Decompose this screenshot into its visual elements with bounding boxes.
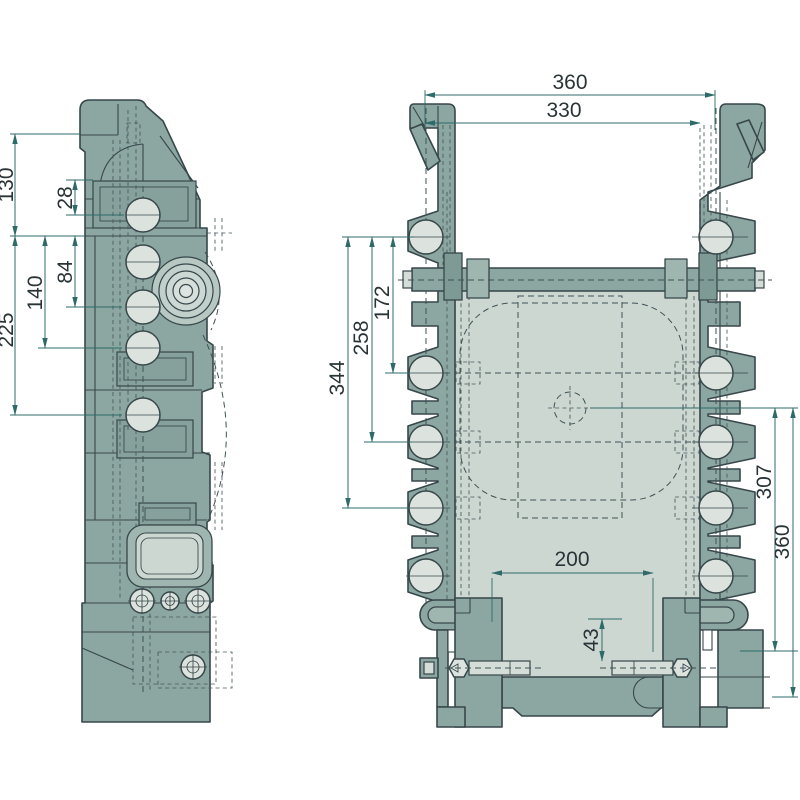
inspection-window: [127, 525, 212, 587]
slot-gap-right: [703, 630, 712, 650]
left-clamp-slab: [410, 124, 440, 170]
dim-130: 130: [0, 134, 85, 236]
dimension-label-330: 330: [546, 99, 581, 122]
dimension-label-172: 172: [371, 285, 394, 320]
dimension-label-258: 258: [350, 320, 373, 355]
dim-258: 258: [350, 237, 412, 442]
clamp-bolt-left: [445, 659, 545, 677]
dimension-label-43: 43: [580, 628, 603, 651]
front-view: 360 330 172 258 344: [326, 71, 798, 727]
bearing-boss: [152, 257, 220, 325]
dimension-label-200: 200: [554, 548, 589, 571]
dimension-label-130: 130: [0, 167, 18, 202]
cad-drawing-page: 130 225 140 84 28: [0, 0, 800, 800]
dim-344: 344: [326, 237, 410, 508]
dimension-label-307: 307: [753, 464, 776, 499]
foot-right: [700, 707, 727, 727]
cad-drawing: 130 225 140 84 28: [0, 0, 800, 800]
dimension-label-344: 344: [326, 360, 349, 395]
dimension-label-28: 28: [54, 186, 77, 209]
side-view: 130 225 140 84 28: [0, 100, 232, 722]
dimension-label-360-right: 360: [771, 524, 794, 559]
dimension-label-360-top: 360: [552, 71, 587, 94]
dimension-label-140: 140: [24, 275, 47, 310]
base-web: [502, 677, 663, 716]
dimension-label-225: 225: [0, 312, 18, 347]
foot-left: [437, 707, 465, 727]
dim-330: 330: [425, 99, 700, 242]
dimension-label-84: 84: [54, 260, 77, 284]
